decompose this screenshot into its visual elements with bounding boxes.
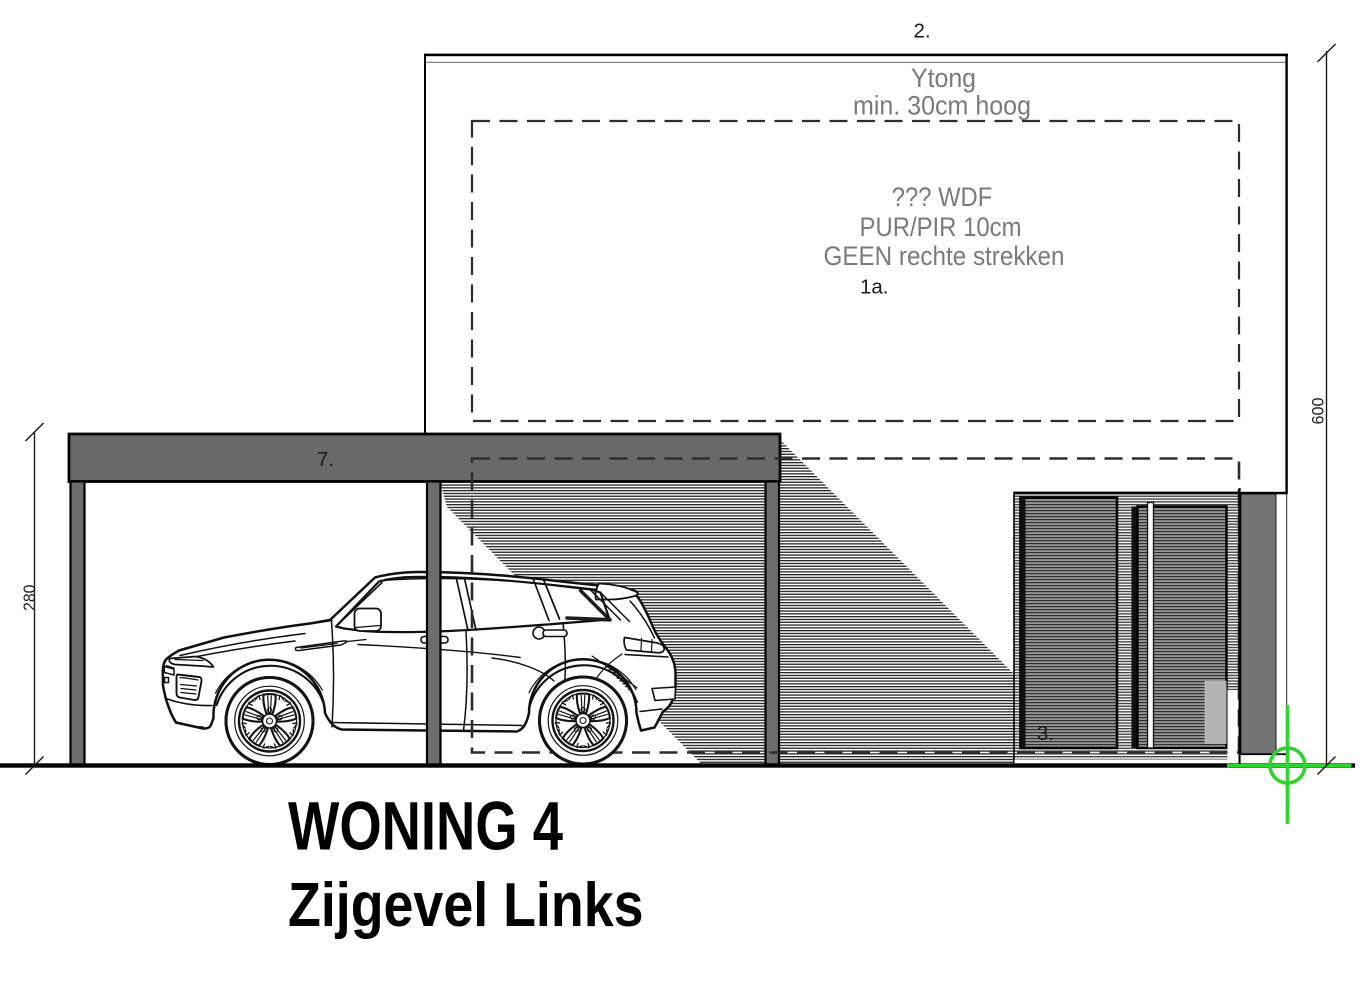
svg-text:7.: 7. [317, 448, 334, 471]
svg-text:WONING 4: WONING 4 [288, 788, 563, 865]
svg-text:3.: 3. [1037, 722, 1054, 745]
svg-text:1a.: 1a. [860, 276, 889, 299]
svg-text:??? WDF: ??? WDF [892, 182, 993, 212]
svg-text:2.: 2. [914, 20, 931, 43]
svg-text:600: 600 [1309, 398, 1328, 425]
svg-text:min. 30cm hoog: min. 30cm hoog [853, 91, 1031, 121]
svg-text:Ytong: Ytong [911, 63, 976, 93]
svg-text:GEEN rechte strekken: GEEN rechte strekken [824, 241, 1065, 271]
svg-text:280: 280 [20, 585, 39, 612]
svg-text:PUR/PIR 10cm: PUR/PIR 10cm [860, 212, 1022, 242]
svg-text:Zijgevel Links: Zijgevel Links [288, 871, 644, 940]
